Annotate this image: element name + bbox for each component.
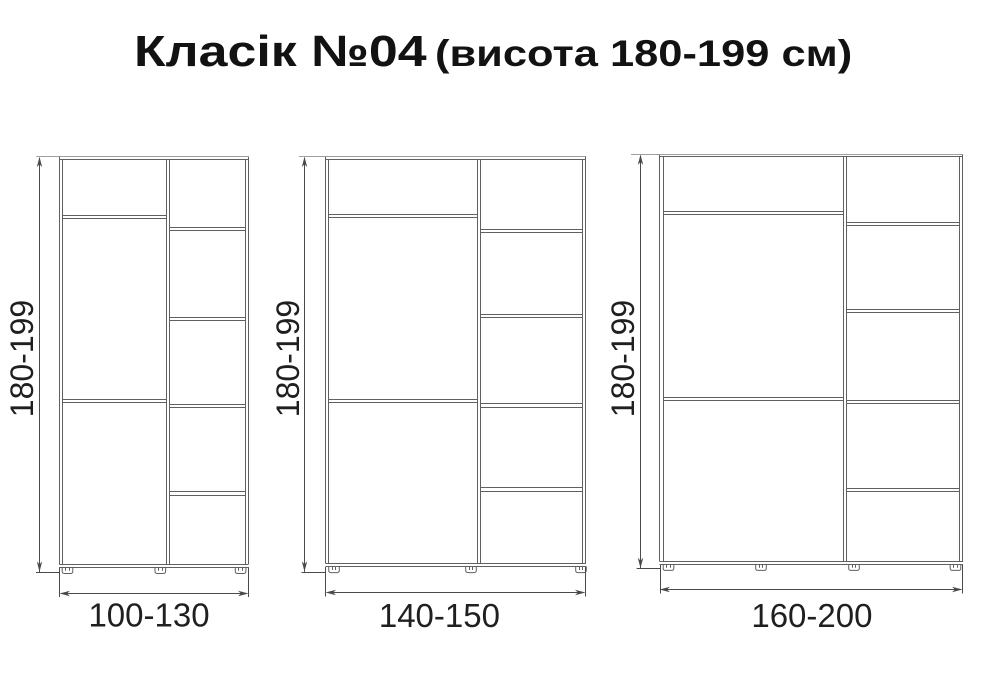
svg-text:180-199: 180-199 <box>270 300 306 417</box>
svg-text:140-150: 140-150 <box>379 597 500 634</box>
svg-text:160-200: 160-200 <box>751 597 872 634</box>
svg-text:180-199: 180-199 <box>4 300 40 417</box>
svg-text:100-130: 100-130 <box>88 596 209 633</box>
svg-text:180-199: 180-199 <box>605 300 641 417</box>
